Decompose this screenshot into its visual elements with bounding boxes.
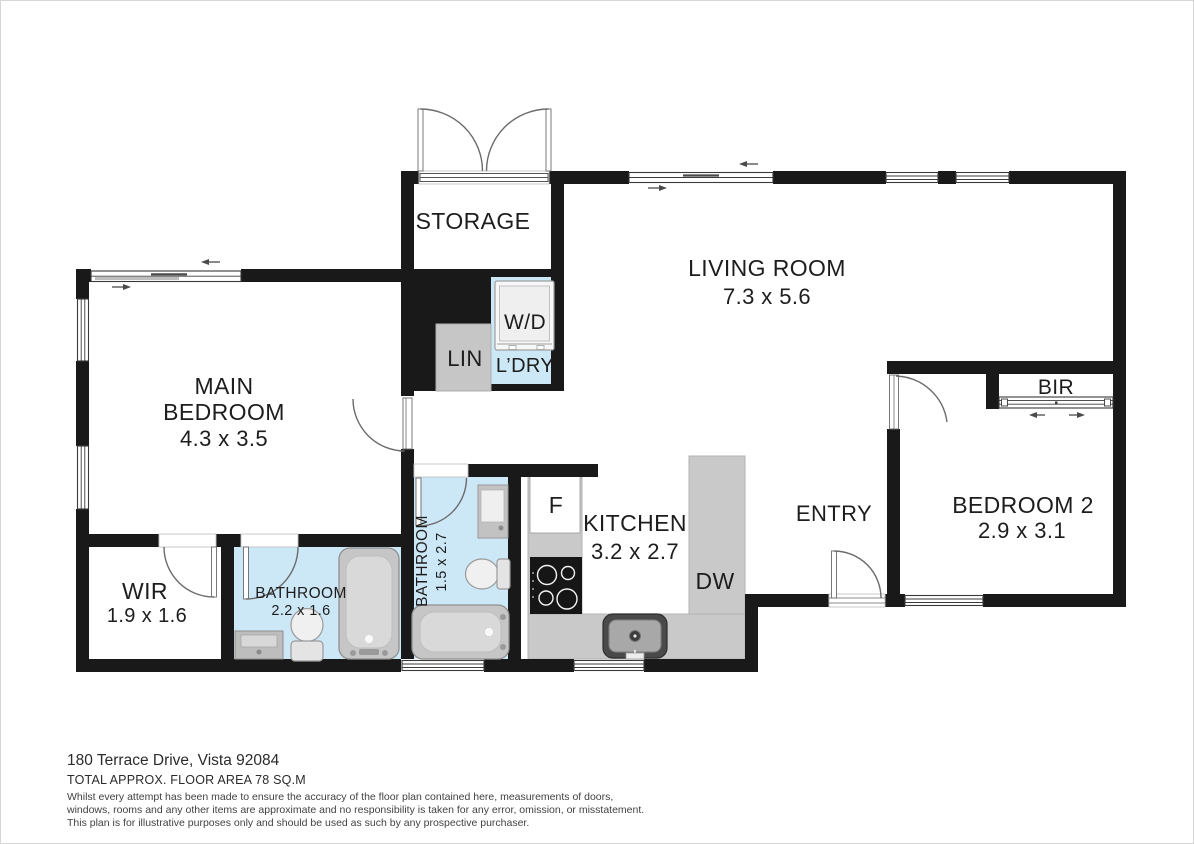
ensuite-door-opening [414,464,468,477]
wall-segment [986,374,999,409]
vanity [235,631,283,659]
window-bedroom-left-lower [78,446,89,509]
label-laundry: L’DRY [496,355,554,377]
label-main-bedroom-line1: MAIN [194,373,253,399]
bedroom2-door [890,375,948,429]
label-storage: STORAGE [416,208,531,234]
wall-segment [745,594,829,607]
label-fridge: F [549,492,563,518]
label-washer-dryer: W/D [504,311,546,334]
wall-segment [644,659,758,672]
disclaimer-line-2: windows, rooms and any other items are a… [67,804,1127,817]
label-bathroom-ensuite-dims: 1.5 x 2.7 [434,532,450,591]
wall-segment [1113,171,1126,607]
wall-segment [221,547,234,659]
label-wir-dims: 1.9 x 1.6 [107,605,187,627]
arrow-left-icon [739,161,758,167]
wall-segment [76,659,401,672]
footer: 180 Terrace Drive, Vista 92084 TOTAL APP… [67,752,1127,830]
main-bedroom-door [353,398,412,451]
wall-segment [76,361,89,446]
disclaimer-line-1: Whilst every attempt has been made to en… [67,791,1127,804]
wall-segment [241,269,414,282]
arrow-right-icon [112,284,131,290]
wall-segment [521,464,598,477]
total-floor-area: TOTAL APPROX. FLOOR AREA 78 SQ.M [67,773,1127,787]
property-address: 180 Terrace Drive, Vista 92084 [67,752,1127,770]
window-ensuite-bottom [402,661,484,671]
entry-door-opening [829,594,885,607]
window-kitchen-bottom [574,661,644,671]
wir-door [164,547,217,597]
disclaimer-line-3: This plan is for illustrative purposes o… [67,817,1127,830]
storage-door-track [420,174,548,182]
wall-segment [773,171,886,184]
wall-segment [983,594,1126,607]
label-bir: BIR [1038,376,1074,399]
label-living-room-dims: 7.3 x 5.6 [723,284,811,309]
floorplan-page: STORAGE LIVING ROOM 7.3 x 5.6 MAIN BEDRO… [0,0,1194,844]
label-linen: LIN [447,346,482,371]
wall-segment [401,171,414,282]
entry-door [832,551,882,598]
cooktop [530,557,582,614]
arrow-left-icon [201,259,220,265]
label-kitchen-dims: 3.2 x 2.7 [591,539,679,564]
label-bathroom-main: BATHROOM [255,585,347,602]
wall-segment [76,534,159,547]
window-sliding-living-room [629,173,773,183]
label-main-bedroom-dims: 4.3 x 3.5 [180,426,268,451]
toilet [466,559,511,589]
floorplan-drawing: STORAGE LIVING ROOM 7.3 x 5.6 MAIN BEDRO… [1,1,1194,749]
wall-segment [76,269,89,299]
window-bedroom-left-upper [78,299,89,361]
arrow-right-icon [648,185,667,191]
kitchen-sink [603,614,667,659]
vanity [478,485,508,538]
wall-segment [216,534,241,547]
arrow-left-icon [1029,412,1045,418]
label-kitchen: KITCHEN [583,510,687,536]
wall-segment [887,429,900,594]
wall-segment [885,594,905,607]
label-entry: ENTRY [796,501,872,526]
wall-segment [484,659,574,672]
label-main-bedroom-line2: BEDROOM [163,399,285,425]
wall-segment [1009,171,1113,184]
wall-segment [76,509,89,672]
window-living-top-left [886,173,938,183]
window-sliding-main-bedroom [91,271,241,282]
storage-double-door [418,109,551,171]
sliding-arrows [112,161,1085,418]
label-bedroom2-dims: 2.9 x 3.1 [978,518,1066,543]
label-wir: WIR [122,578,168,604]
bathtub [339,548,399,659]
label-bathroom-main-dims: 2.2 x 1.6 [271,603,330,619]
label-bedroom2: BEDROOM 2 [952,492,1094,518]
window-bedroom2-bottom [905,596,983,606]
wall-segment [938,171,956,184]
wir-door-opening [159,534,216,547]
label-dishwasher: DW [695,568,734,594]
window-living-top-right [956,173,1009,183]
wall-segment [401,282,414,396]
wall-segment [887,361,1126,374]
bathroom-door-opening [241,534,298,547]
label-living-room: LIVING ROOM [688,255,846,281]
wall-segment [298,534,414,547]
arrow-right-icon [1069,412,1085,418]
label-bathroom-ensuite: BATHROOM [414,515,431,607]
bathtub [412,605,509,659]
